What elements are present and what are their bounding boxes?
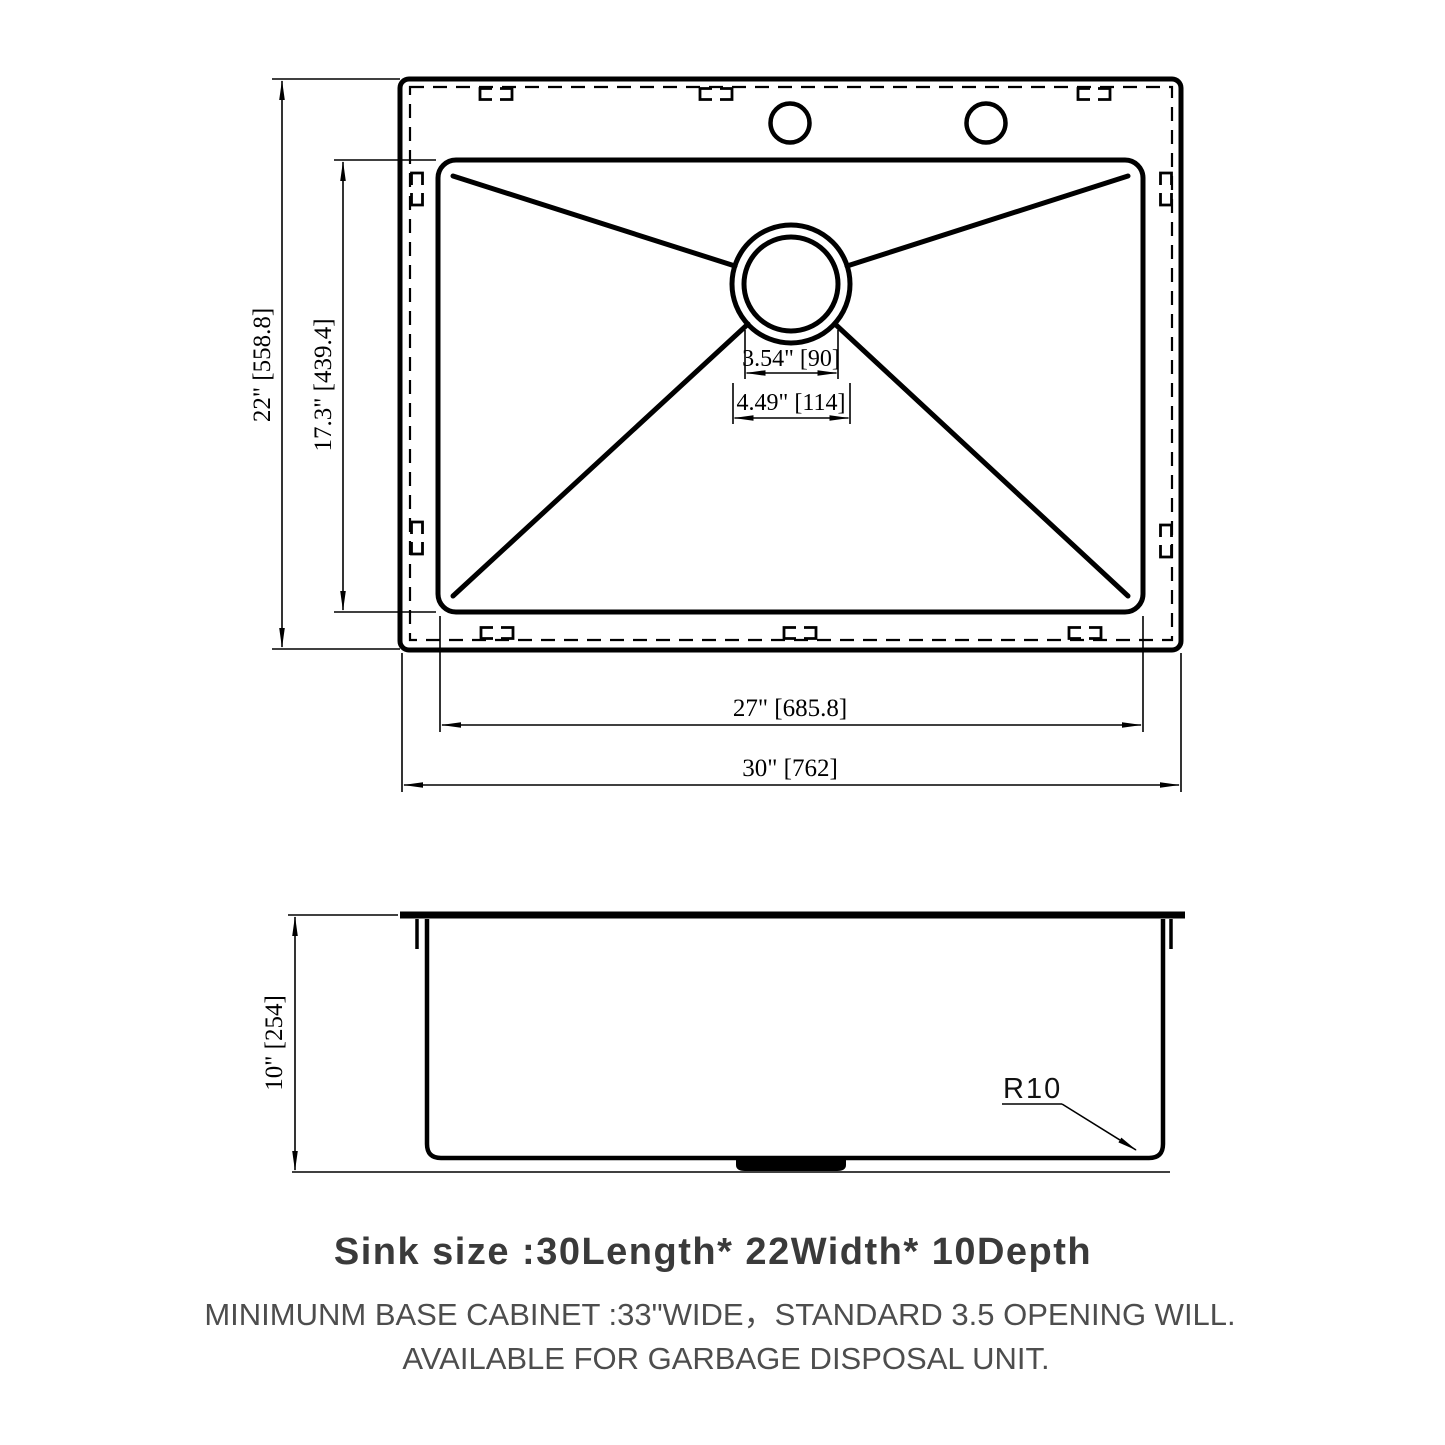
side-bowl-outline [427, 919, 1163, 1158]
crease-line-top-left [453, 176, 735, 266]
sink-spec-sheet: 22" [558.8] 17.3" [439.4] 3.54" [90] 4.4… [0, 0, 1445, 1445]
mounting-clip-top-2 [700, 89, 732, 100]
side-drain-fitting [736, 1159, 846, 1171]
dim-label-overall-width: 22" [558.8] [249, 308, 276, 422]
crease-line-top-right [847, 176, 1128, 266]
mounting-clip-bottom-1 [481, 628, 513, 639]
corner-radius-label: R10 [1003, 1073, 1062, 1105]
notes-block: Sink size :30Length* 22Width* 10Depth MI… [204, 1231, 1235, 1376]
top-view: 22" [558.8] 17.3" [439.4] 3.54" [90] 4.4… [249, 79, 1181, 792]
mounting-clip-left-2 [412, 522, 423, 554]
dim-label-drain-inner: 3.54" [90] [742, 346, 840, 372]
dim-label-depth: 10" [254] [261, 995, 288, 1091]
dim-label-bowl-width: 17.3" [439.4] [310, 318, 337, 451]
mounting-clip-right-2 [1161, 525, 1172, 557]
dim-label-overall-length: 30" [762] [742, 755, 838, 782]
mounting-clip-left-1 [412, 173, 423, 205]
side-view: 10" [254] R10 [261, 915, 1185, 1172]
bowl-outline [438, 160, 1143, 612]
mounting-clip-top-3 [1078, 89, 1110, 100]
mounting-clip-right-1 [1161, 173, 1172, 205]
faucet-hole-left [771, 104, 810, 143]
dim-label-drain-outer: 4.49" [114] [737, 390, 846, 416]
r10-leader-line [1062, 1104, 1136, 1150]
note-line-disposal: AVAILABLE FOR GARBAGE DISPOSAL UNIT. [402, 1341, 1049, 1376]
mounting-clip-bottom-2 [784, 628, 816, 639]
crease-line-bottom-right [835, 324, 1128, 596]
mounting-clip-bottom-3 [1069, 628, 1101, 639]
crease-line-bottom-left [453, 324, 748, 596]
note-line-cabinet: MINIMUNM BASE CABINET :33"WIDE，STANDARD … [204, 1297, 1235, 1332]
sink-size-title: Sink size :30Length* 22Width* 10Depth [334, 1231, 1092, 1273]
mounting-clip-top-1 [480, 89, 512, 100]
technical-drawing: 22" [558.8] 17.3" [439.4] 3.54" [90] 4.4… [0, 0, 1445, 1445]
drain-inner-circle [744, 237, 838, 331]
dim-label-bowl-length: 27" [685.8] [733, 695, 847, 722]
faucet-hole-right [967, 104, 1006, 143]
